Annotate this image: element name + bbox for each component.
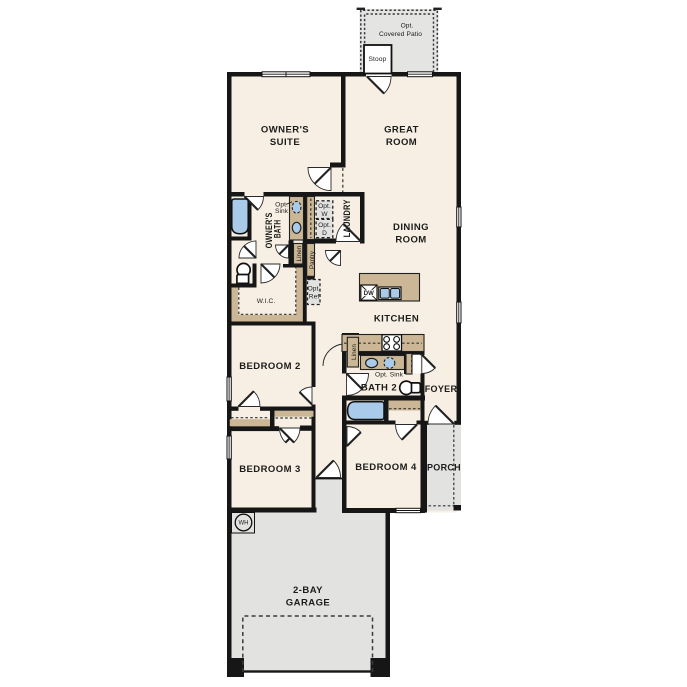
svg-text:OWNER'S: OWNER'S [261, 125, 309, 136]
svg-text:Opt.: Opt. [318, 203, 331, 210]
svg-text:GREAT: GREAT [384, 125, 419, 136]
svg-text:BEDROOM 3: BEDROOM 3 [239, 464, 301, 475]
svg-text:BEDROOM 4: BEDROOM 4 [355, 462, 417, 473]
svg-text:Opt.: Opt. [401, 23, 414, 30]
svg-text:BEDROOM 2: BEDROOM 2 [239, 361, 301, 372]
svg-text:Opt. Sink: Opt. Sink [375, 372, 404, 379]
svg-text:ROOM: ROOM [386, 137, 417, 148]
svg-text:D: D [322, 230, 327, 237]
svg-text:BATH: BATH [273, 220, 283, 239]
svg-text:WH: WH [239, 521, 249, 527]
svg-text:Opt.: Opt. [318, 222, 331, 229]
svg-text:Covered Patio: Covered Patio [379, 31, 422, 38]
svg-text:PORCH: PORCH [427, 462, 461, 472]
svg-text:Opt.: Opt. [308, 286, 321, 293]
svg-text:GARAGE: GARAGE [286, 598, 330, 609]
svg-text:SUITE: SUITE [270, 137, 300, 148]
svg-text:LAUNDRY: LAUNDRY [342, 199, 352, 237]
svg-text:2-BAY: 2-BAY [293, 585, 323, 596]
svg-text:BATH 2: BATH 2 [361, 383, 397, 394]
svg-text:DINING: DINING [393, 222, 429, 233]
svg-text:W: W [321, 211, 328, 218]
svg-text:Ref: Ref [309, 294, 320, 301]
svg-text:Sink: Sink [275, 208, 289, 215]
svg-text:Stoop: Stoop [369, 56, 387, 63]
svg-text:Linen: Linen [296, 245, 303, 261]
svg-text:Pantry: Pantry [309, 250, 316, 269]
svg-text:KITCHEN: KITCHEN [374, 314, 419, 325]
svg-text:FOYER: FOYER [425, 384, 458, 394]
svg-text:ROOM: ROOM [395, 235, 426, 246]
svg-text:DW: DW [364, 291, 374, 297]
svg-text:Linen: Linen [351, 344, 358, 360]
svg-text:W.I.C.: W.I.C. [257, 298, 276, 305]
